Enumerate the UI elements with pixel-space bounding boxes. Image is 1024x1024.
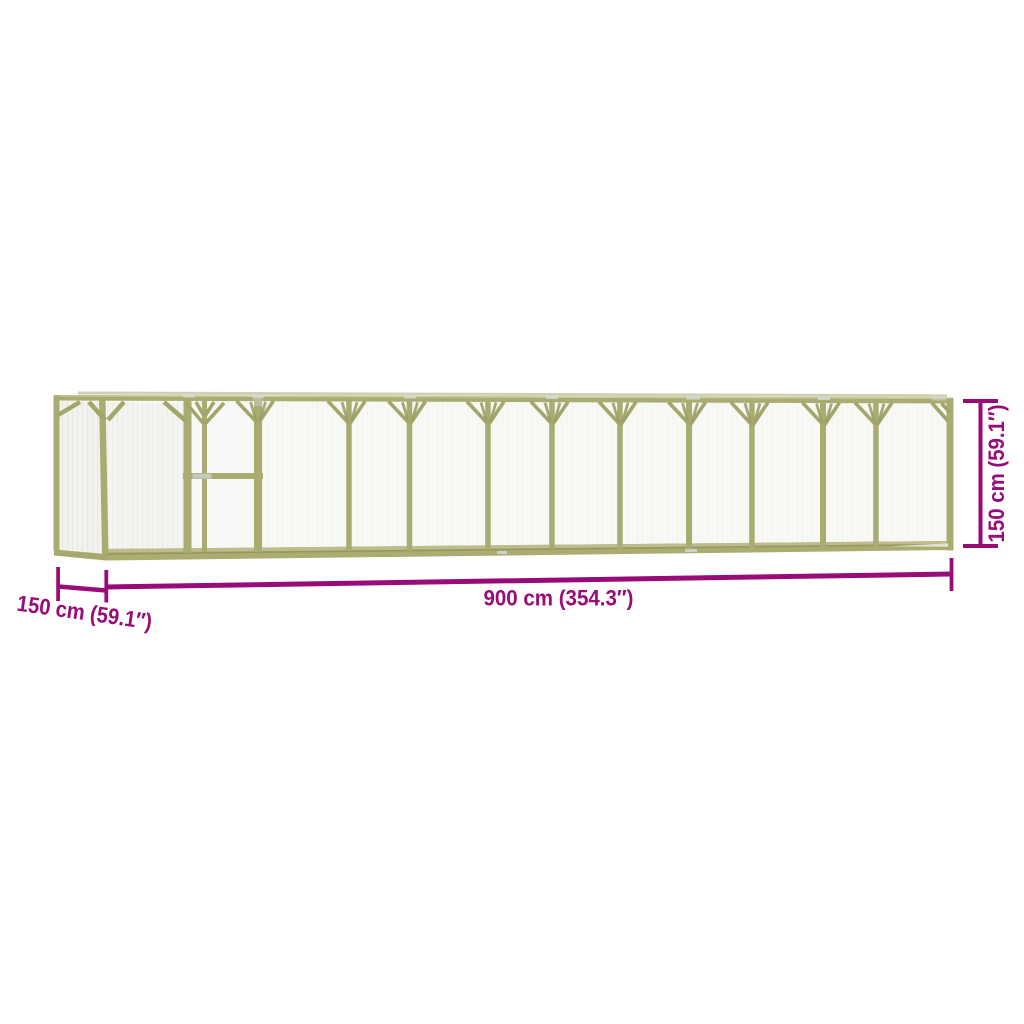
svg-text:150 cm (59.1″): 150 cm (59.1″) (984, 405, 1009, 543)
svg-text:900 cm (354.3″): 900 cm (354.3″) (484, 586, 634, 611)
svg-text:150 cm (59.1″): 150 cm (59.1″) (15, 591, 153, 635)
